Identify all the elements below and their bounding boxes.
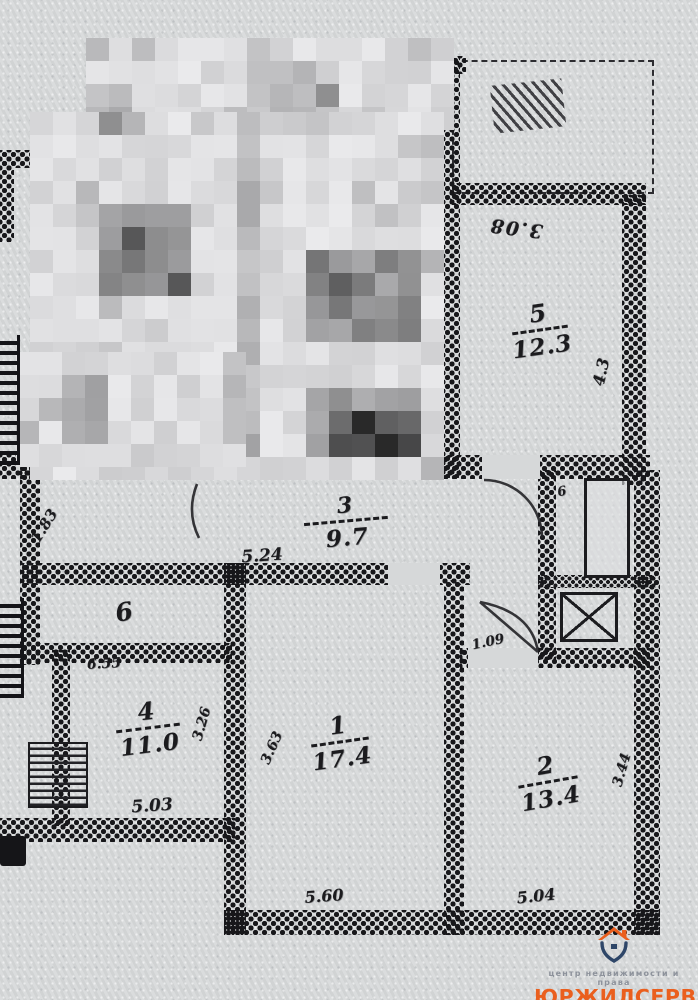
dimension-label: 5.24 — [241, 545, 284, 568]
dim-text: 5.24 — [241, 545, 284, 568]
dim-text: 6.55 — [87, 655, 122, 673]
room-label-5: 5 12.3 — [506, 298, 573, 363]
door-squiggle-icon — [192, 484, 199, 538]
room-label-1: 1 17.4 — [306, 710, 373, 775]
room-label-2: 2 13.4 — [513, 749, 582, 816]
agency-logo: центр недвижимости и права ЮРЖИЛСЕРВИС — [534, 924, 694, 1000]
radiator-comb-icon — [0, 598, 24, 698]
room-number: 2 — [535, 752, 556, 779]
dimension-label: 6.55 — [87, 655, 122, 673]
dim-text: 5.03 — [131, 795, 174, 818]
dimension-label: 5.60 — [304, 885, 344, 907]
door-arc-icon — [484, 480, 542, 538]
radiator-comb-icon — [0, 335, 20, 465]
logo-name: ЮРЖИЛСЕРВИС — [534, 987, 694, 1000]
room-label-4: 4 11.0 — [113, 696, 183, 760]
dim-text: 5.60 — [304, 885, 344, 907]
room-area: 11.0 — [119, 730, 181, 760]
dimension-label: 5.03 — [131, 795, 174, 818]
room-number: 1 — [328, 713, 348, 739]
floor-plan-scan: 3.08 5 12.3 4.3 3 9.7 5.24 1.83 6 6.55 4… — [0, 0, 698, 1000]
room-number: 4 — [136, 699, 156, 725]
room-label-3: 3 9.7 — [302, 491, 390, 553]
dimension-label: 5.04 — [516, 885, 557, 908]
room-number: 3 — [336, 494, 353, 517]
dim-text: 5.04 — [516, 885, 557, 908]
room-area: 9.7 — [325, 525, 370, 552]
house-shield-icon — [591, 924, 637, 964]
room-number: 5 — [528, 301, 548, 327]
